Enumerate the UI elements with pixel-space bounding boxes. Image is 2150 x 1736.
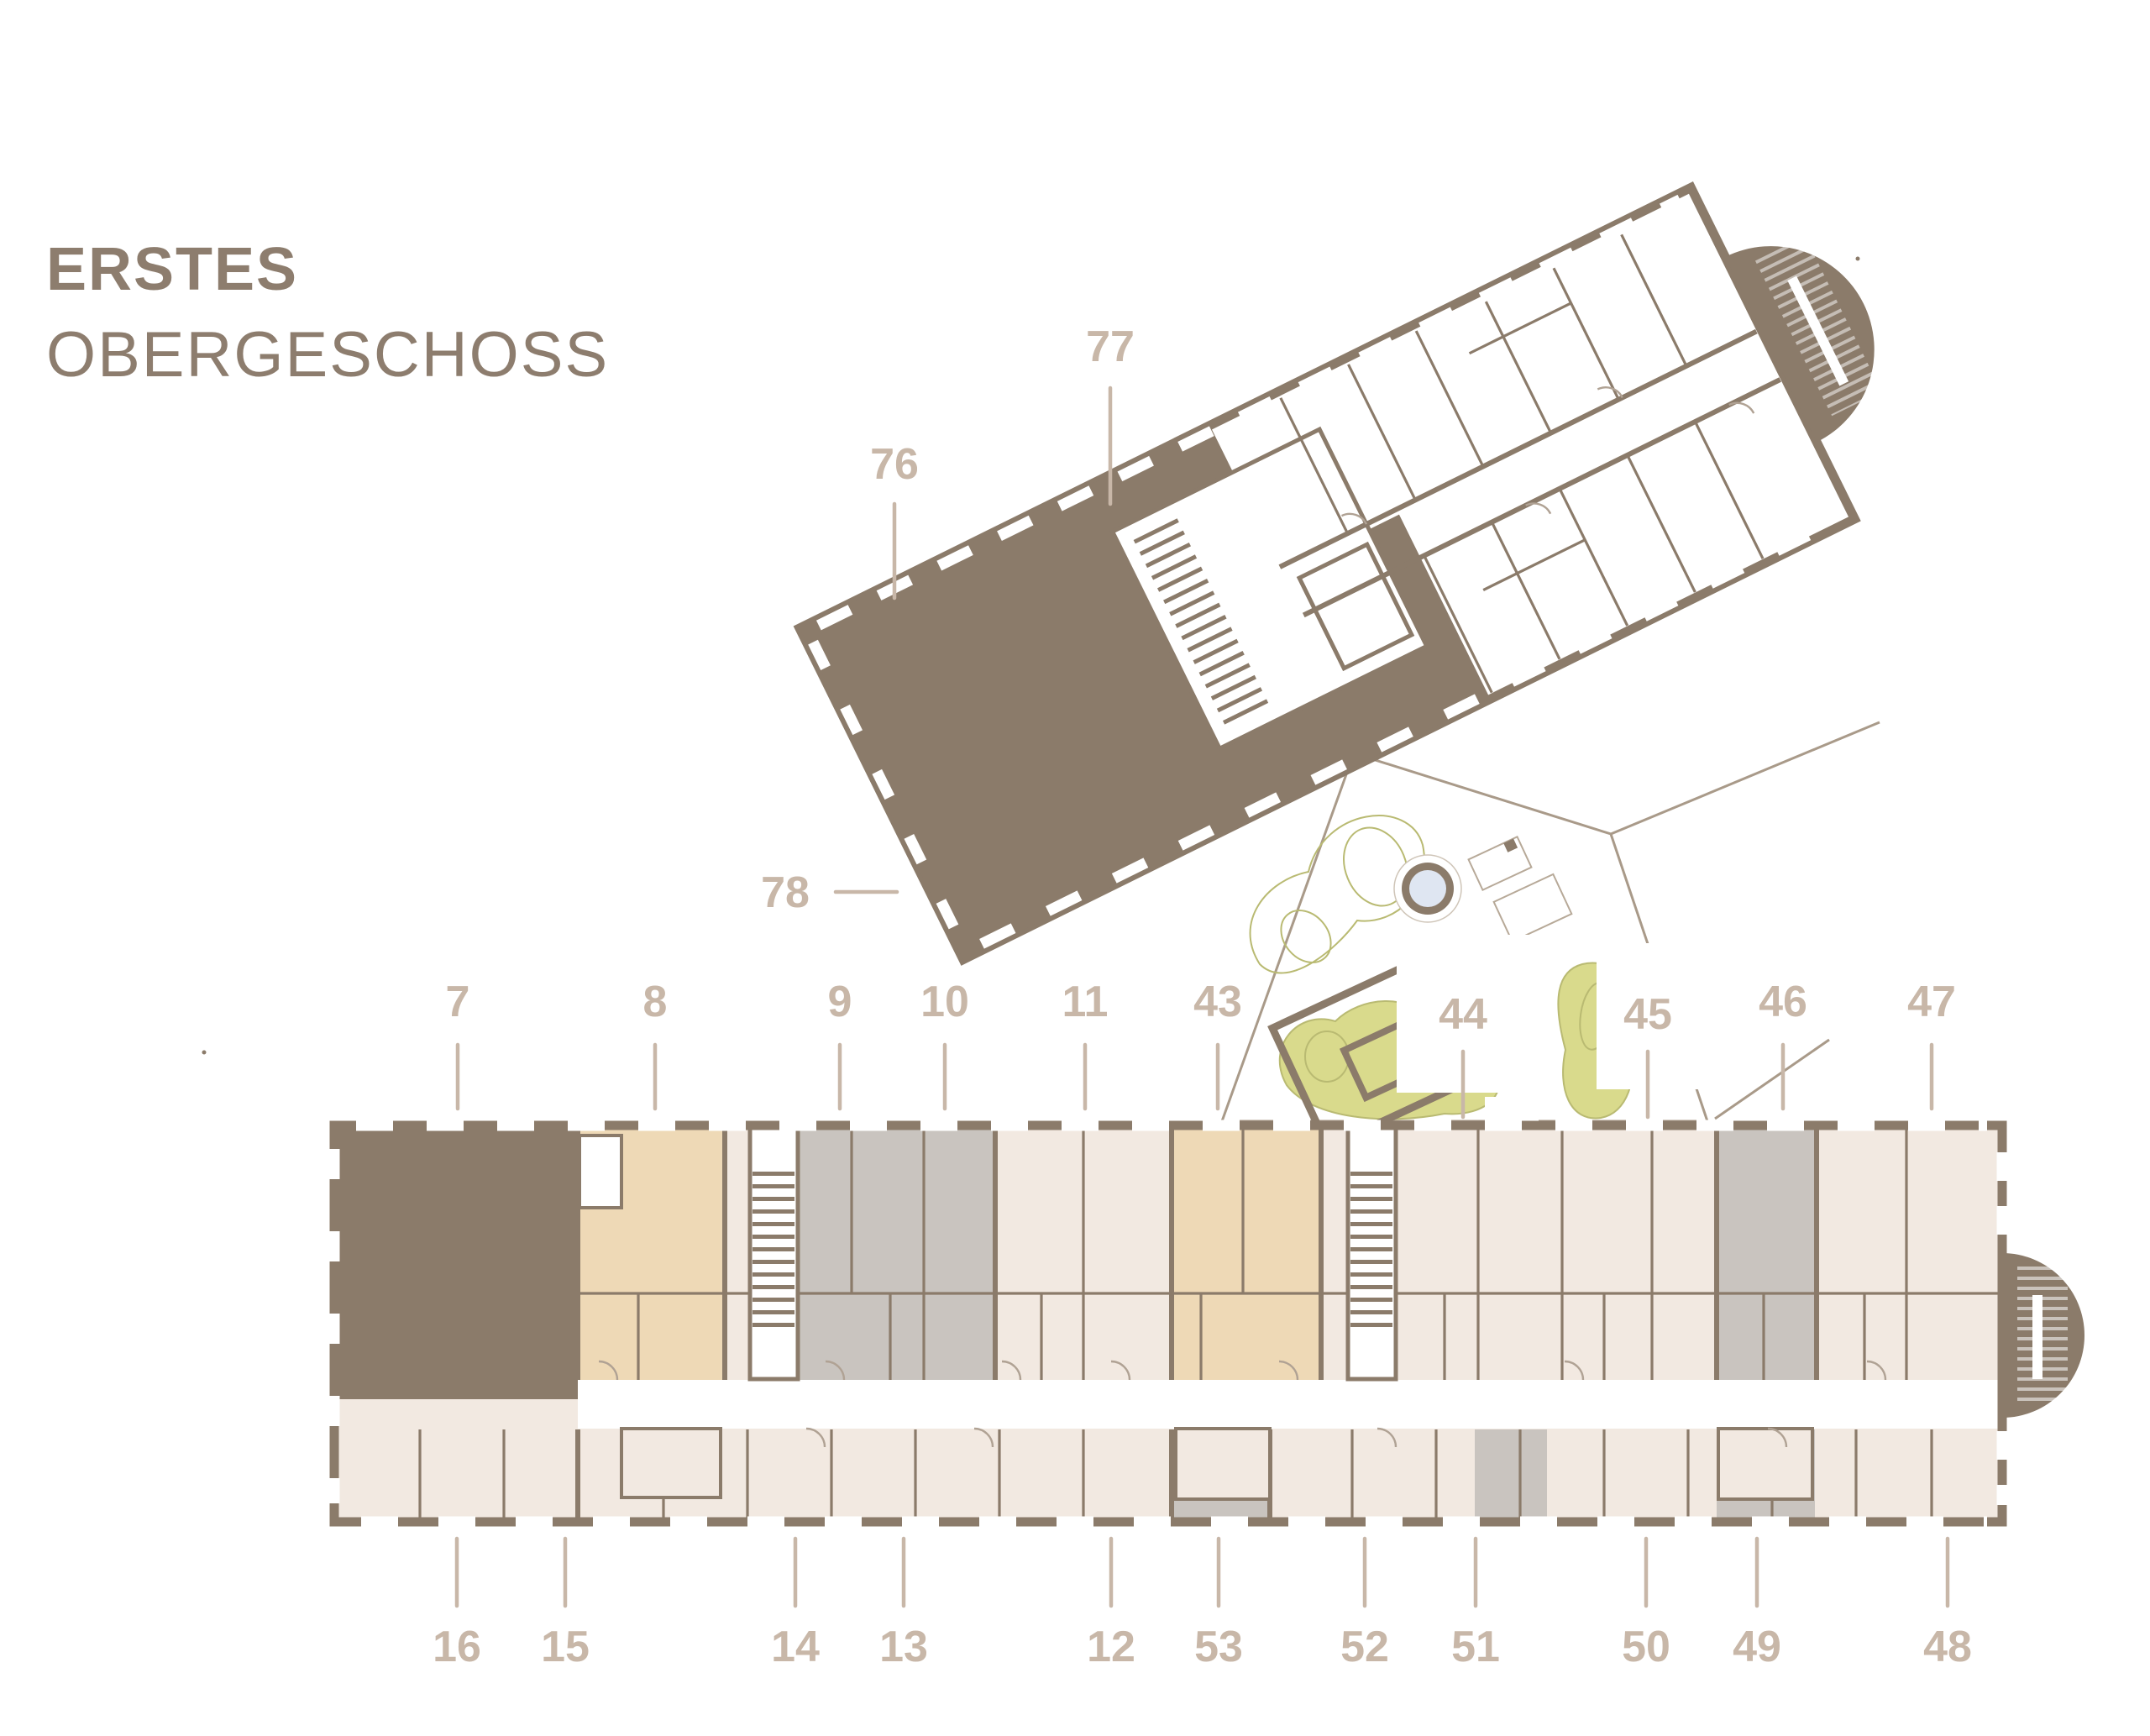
apartment-zone-gray — [798, 1130, 995, 1380]
wing-stair-bulge — [1725, 211, 1909, 442]
apartment-zone-tan — [1172, 1130, 1321, 1380]
unit-label-12: 12 — [1087, 1623, 1135, 1671]
unit-label-52: 52 — [1340, 1623, 1389, 1671]
building-stair-bulge — [2002, 1253, 2084, 1418]
unit-label-77: 77 — [1086, 323, 1135, 371]
stairwell-east — [1348, 1127, 1396, 1379]
stairwell-west — [750, 1127, 798, 1379]
small-dot — [1856, 257, 1860, 261]
apartment-zone-gray — [1475, 1429, 1547, 1518]
floor-plan-page: ERSTES OBERGESCHOSS — [0, 0, 2150, 1736]
unit-label-49: 49 — [1733, 1623, 1781, 1671]
terrace-pad — [1494, 874, 1572, 941]
courtyard-passage — [1485, 1097, 1539, 1122]
unit-label-76: 76 — [870, 440, 919, 489]
walkway-wall — [1715, 1040, 1829, 1119]
unit-label-43: 43 — [1193, 978, 1242, 1026]
courtyard-pond — [1394, 855, 1461, 922]
floor-plan-svg: ERSTES OBERGESCHOSS — [0, 0, 2150, 1736]
unit-labels-bottom: 1615141312535251504948 — [433, 1539, 1972, 1671]
unit-label-50: 50 — [1622, 1623, 1670, 1671]
unit-label-15: 15 — [541, 1623, 590, 1671]
lower-building — [334, 1125, 2084, 1522]
unit-label-46: 46 — [1759, 978, 1807, 1026]
title-line-2: OBERGESCHOSS — [46, 319, 609, 391]
terrace-pad — [1469, 837, 1532, 889]
apartment-zone-gray — [1717, 1130, 1817, 1380]
unit-label-48: 48 — [1923, 1623, 1972, 1671]
unit-label-53: 53 — [1194, 1623, 1243, 1671]
unit-label-47: 47 — [1907, 978, 1956, 1026]
title: ERSTES OBERGESCHOSS — [46, 236, 609, 391]
unit-labels-top: 7891011434647 — [446, 978, 1956, 1109]
unit-label-44: 44 — [1439, 990, 1487, 1039]
unit-label-51: 51 — [1451, 1623, 1500, 1671]
small-room — [579, 1135, 621, 1208]
unit-label-11: 11 — [1062, 978, 1109, 1026]
unit-label-8: 8 — [643, 978, 668, 1026]
unit-label-13: 13 — [879, 1623, 928, 1671]
title-line-1: ERSTES — [46, 236, 298, 303]
unit-label-16: 16 — [433, 1623, 481, 1671]
upper-wing — [800, 142, 1948, 960]
corridor — [578, 1380, 2002, 1429]
unit-label-7: 7 — [446, 978, 470, 1026]
unit-label-78: 78 — [761, 868, 810, 917]
unit-label-9: 9 — [828, 978, 852, 1026]
walkway-wall — [1611, 722, 1880, 834]
unit-label-45: 45 — [1623, 990, 1672, 1039]
unit-label-14: 14 — [771, 1623, 820, 1671]
unit-label-10: 10 — [920, 978, 969, 1026]
building-solid-section — [334, 1125, 578, 1399]
small-dot — [202, 1051, 207, 1055]
